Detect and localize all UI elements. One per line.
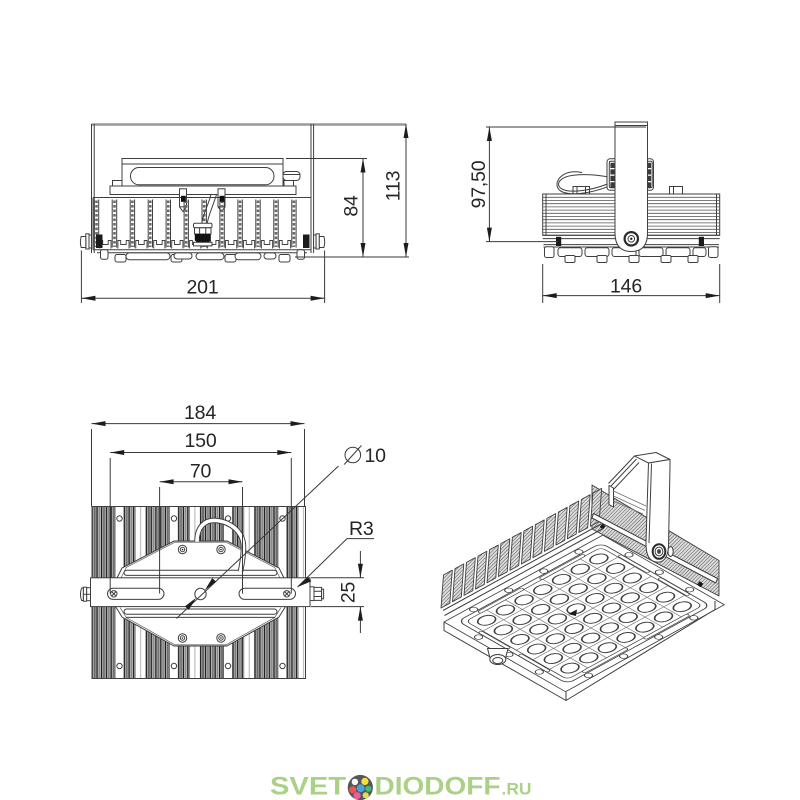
svg-text:146: 146: [610, 275, 642, 297]
svg-text:97,50: 97,50: [468, 160, 490, 208]
svg-text:.RU: .RU: [502, 780, 532, 799]
svg-text:R3: R3: [349, 518, 374, 540]
svg-text:84: 84: [341, 195, 363, 217]
svg-text:DIODOFF: DIODOFF: [375, 773, 501, 800]
svg-text:113: 113: [383, 171, 405, 202]
svg-text:10: 10: [365, 445, 387, 467]
svg-text:SVET: SVET: [270, 773, 346, 800]
svg-text:150: 150: [185, 430, 217, 452]
svg-text:70: 70: [190, 461, 212, 483]
svg-text:25: 25: [338, 582, 360, 604]
svg-text:184: 184: [184, 402, 216, 424]
svg-text:201: 201: [187, 276, 219, 298]
